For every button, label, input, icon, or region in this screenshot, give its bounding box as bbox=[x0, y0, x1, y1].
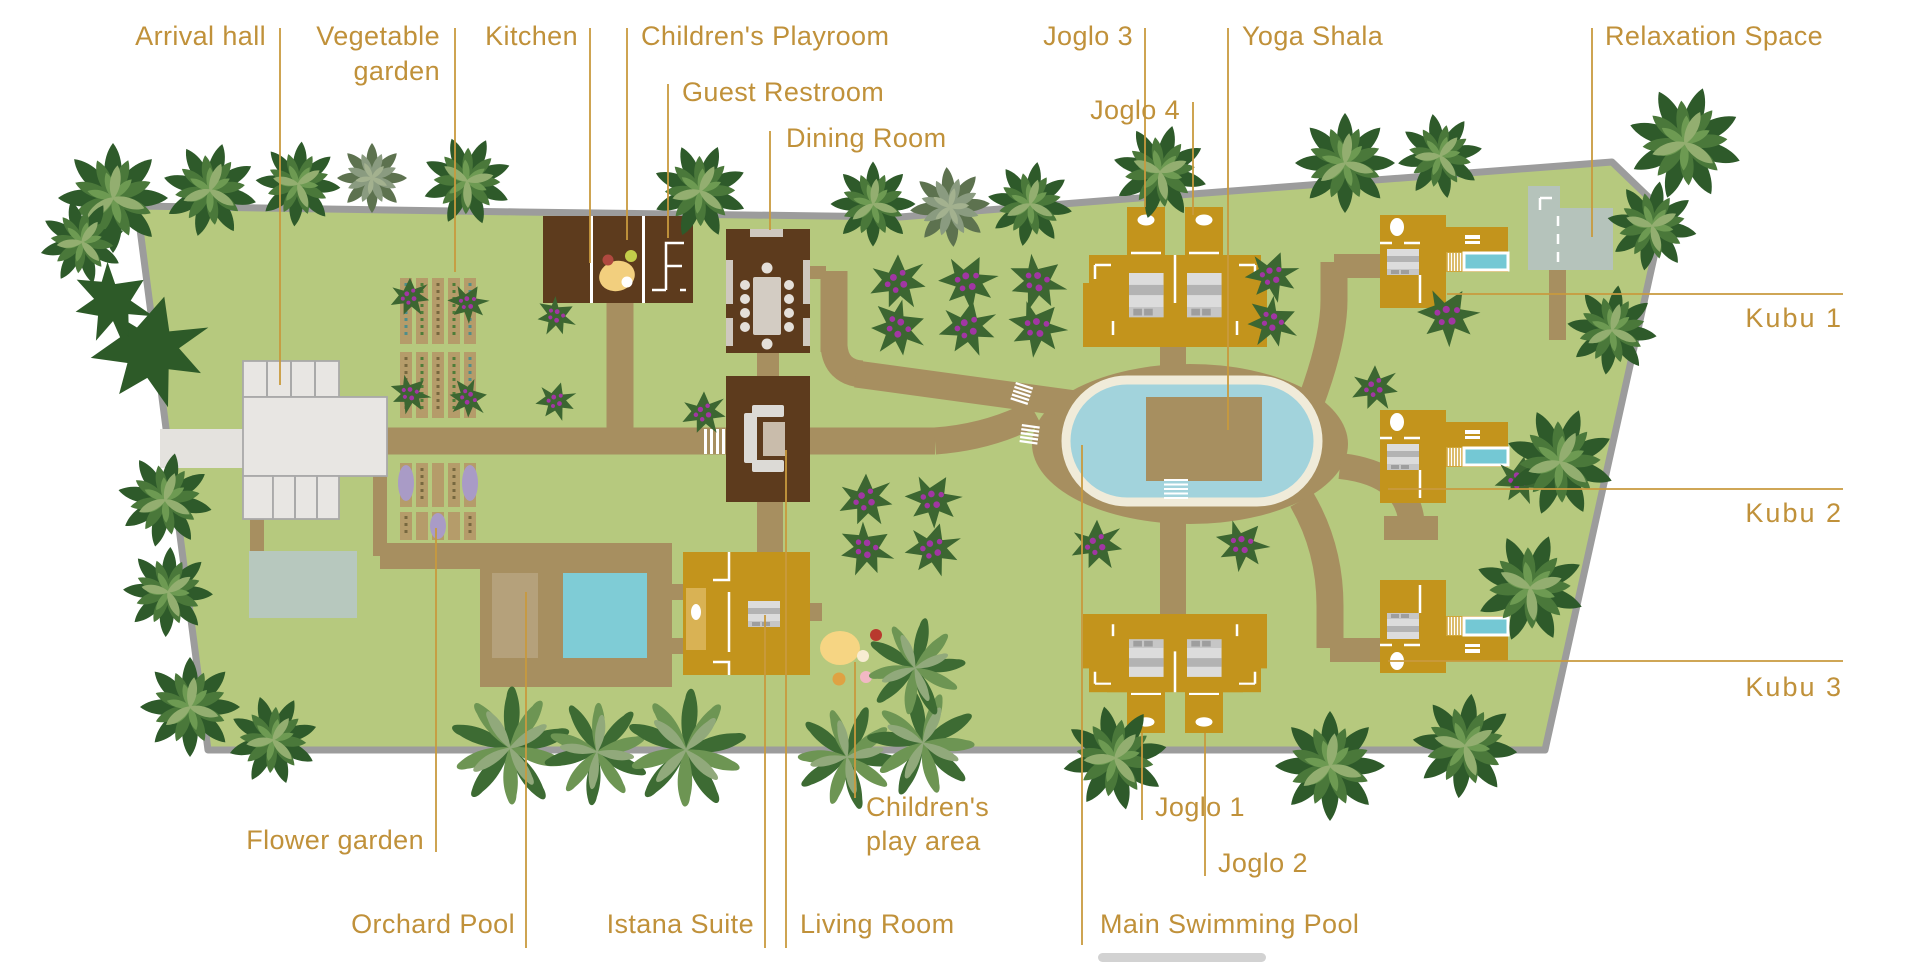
label-istana-suite: Istana Suite bbox=[607, 909, 754, 939]
arrival-pond bbox=[249, 551, 357, 618]
label-joglo-2: Joglo 2 bbox=[1218, 848, 1308, 878]
label-joglo-4: Joglo 4 bbox=[1090, 95, 1180, 125]
dining-door-path bbox=[808, 266, 826, 279]
tree-icon bbox=[1295, 113, 1395, 213]
label-childrens-playroom: Children's Playroom bbox=[641, 21, 889, 51]
label-orchard-pool: Orchard Pool bbox=[351, 909, 515, 939]
pond-path bbox=[250, 519, 264, 552]
main-swimming-pool bbox=[1066, 380, 1318, 502]
dining-table bbox=[753, 277, 781, 335]
orchard-pool bbox=[480, 543, 672, 687]
tree-icon bbox=[831, 162, 916, 247]
tree-icon bbox=[1275, 711, 1385, 821]
dining-south-path bbox=[757, 350, 779, 378]
label-guest-restroom: Guest Restroom bbox=[682, 77, 884, 107]
label-play-area-line2: play area bbox=[866, 826, 981, 856]
label-main-swimming-pool: Main Swimming Pool bbox=[1100, 909, 1359, 939]
bottom-edge-detail bbox=[1098, 953, 1266, 962]
label-kubu-1: Kubu 1 bbox=[1745, 303, 1843, 333]
tree-icon bbox=[337, 143, 407, 213]
label-joglo-3: Joglo 3 bbox=[1043, 21, 1133, 51]
building-living-room bbox=[726, 376, 810, 502]
label-flower-garden: Flower garden bbox=[246, 825, 424, 855]
label-arrival-hall: Arrival hall bbox=[135, 21, 266, 51]
site-map: Arrival hall Vegetable garden Kitchen Ch… bbox=[0, 0, 1920, 962]
building-istana-suite bbox=[672, 552, 822, 675]
label-kitchen: Kitchen bbox=[485, 21, 578, 51]
label-living-room: Living Room bbox=[800, 909, 954, 939]
site-plan-page: Arrival hall Vegetable garden Kitchen Ch… bbox=[0, 0, 1920, 962]
label-vegetable-garden-line1: Vegetable bbox=[316, 21, 440, 51]
label-dining-room: Dining Room bbox=[786, 123, 946, 153]
label-kubu-3: Kubu 3 bbox=[1745, 672, 1843, 702]
orchard-pool-water bbox=[563, 573, 647, 658]
orchard-deck bbox=[492, 573, 538, 658]
label-yoga-shala: Yoga Shala bbox=[1242, 21, 1384, 51]
flower-garden bbox=[398, 463, 478, 540]
label-joglo-1: Joglo 1 bbox=[1155, 792, 1245, 822]
label-play-area-line1: Children's bbox=[866, 792, 989, 822]
building-dining-room bbox=[726, 229, 810, 353]
sofa-set bbox=[744, 405, 785, 472]
yoga-shala-deck bbox=[1146, 397, 1262, 481]
label-vegetable-garden-line2: garden bbox=[354, 56, 440, 86]
label-kubu-2: Kubu 2 bbox=[1745, 498, 1843, 528]
relaxation-path bbox=[1549, 268, 1566, 340]
tree-icon bbox=[140, 657, 240, 757]
label-relaxation-space: Relaxation Space bbox=[1605, 21, 1823, 51]
building-kitchen-block bbox=[543, 216, 693, 303]
